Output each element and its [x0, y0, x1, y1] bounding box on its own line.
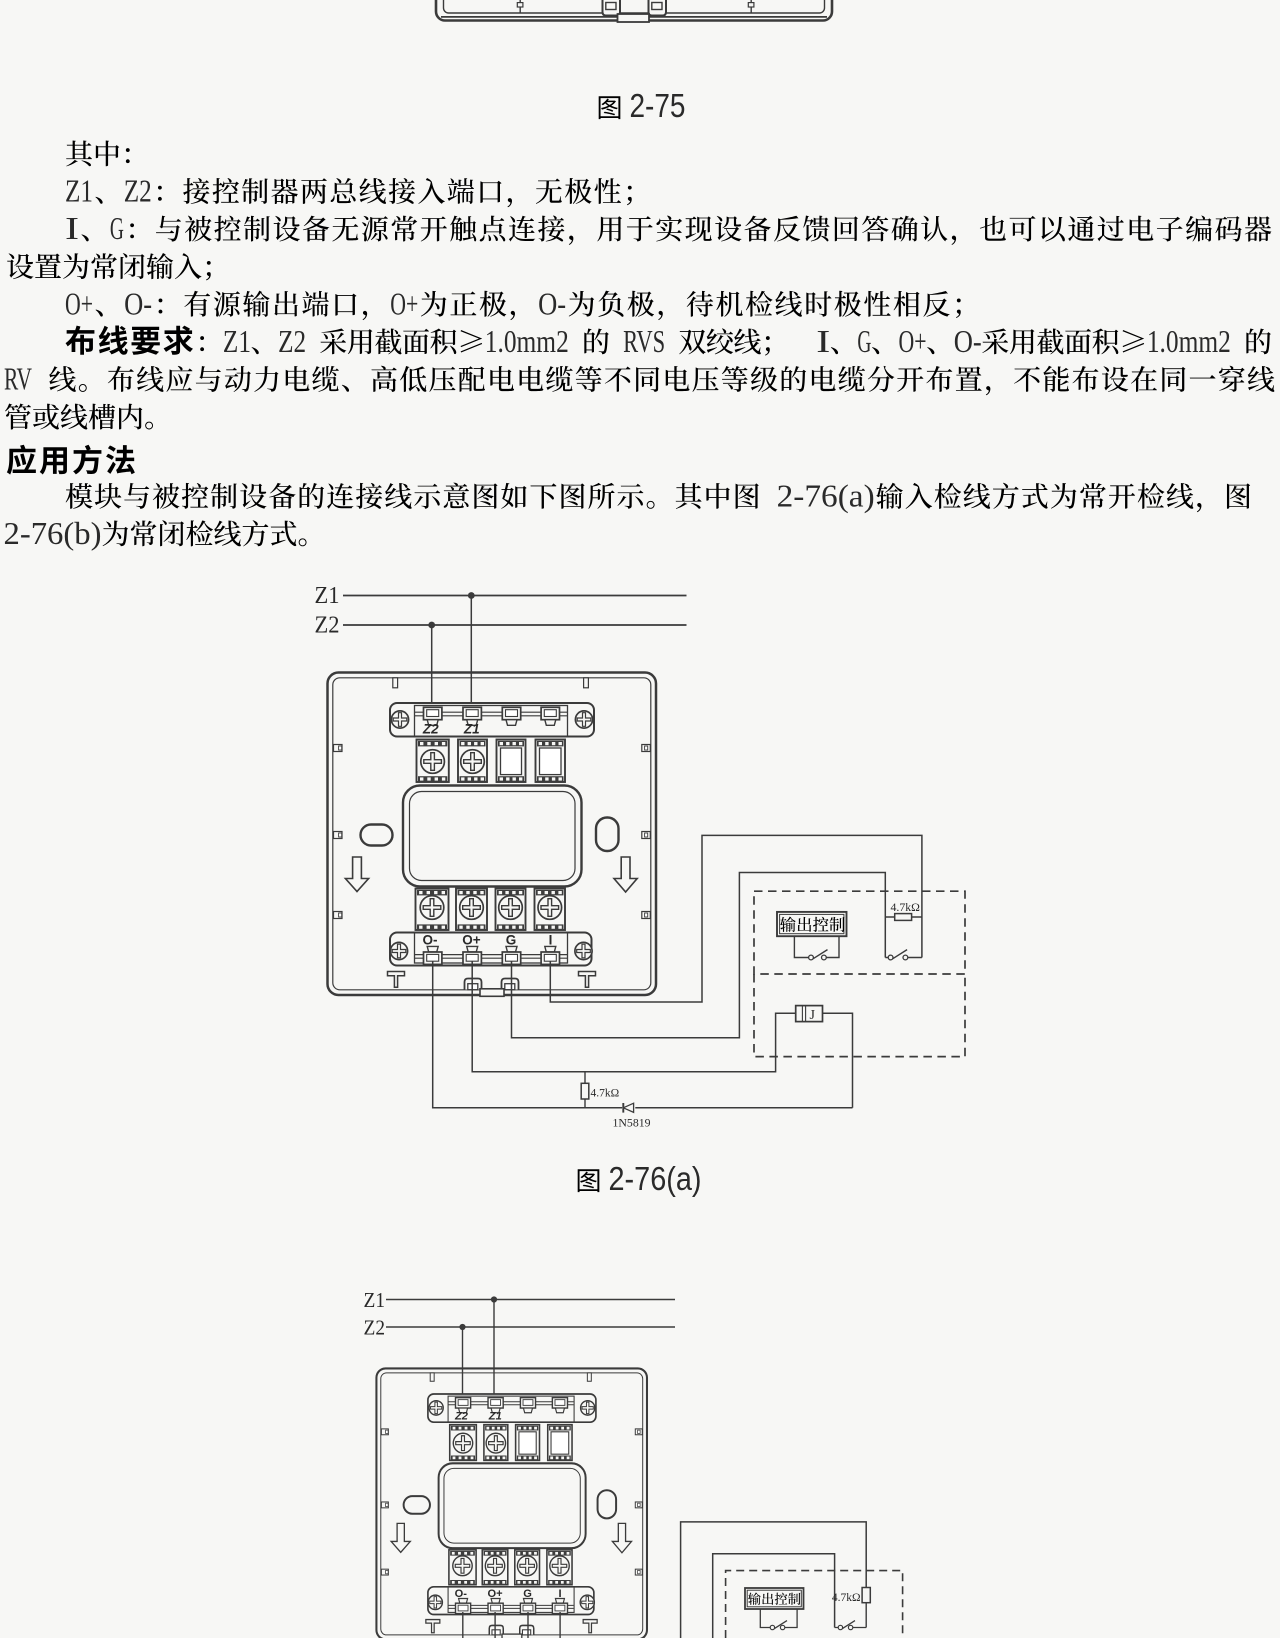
svg-text:Z1: Z1: [65, 173, 93, 209]
svg-text:G: G: [857, 323, 871, 359]
svg-text:O+: O+: [462, 933, 481, 948]
svg-text:Z1: Z1: [315, 582, 340, 609]
svg-text:I: I: [816, 323, 830, 359]
svg-text:2-76(b): 2-76(b): [4, 515, 102, 551]
svg-text:Z2: Z2: [278, 323, 306, 359]
svg-text:O-: O-: [423, 933, 438, 948]
svg-text:RVS: RVS: [623, 323, 665, 359]
svg-text:I: I: [65, 210, 79, 246]
svg-text:I: I: [549, 933, 553, 948]
svg-text:4.7kΩ: 4.7kΩ: [591, 1088, 620, 1100]
svg-text:O-: O-: [954, 323, 982, 359]
svg-text:G: G: [110, 210, 124, 246]
svg-text:O-: O-: [538, 285, 566, 321]
svg-text:Z2: Z2: [124, 173, 152, 209]
svg-text:2-76(a): 2-76(a): [609, 1160, 702, 1197]
svg-text:Z1: Z1: [364, 1288, 386, 1312]
svg-text:O+: O+: [390, 285, 418, 321]
svg-text:1N5819: 1N5819: [613, 1116, 651, 1130]
svg-text:Z1: Z1: [223, 323, 251, 359]
svg-text:1.0mm2: 1.0mm2: [485, 323, 569, 359]
svg-text:2-75: 2-75: [630, 87, 686, 124]
svg-text:RV: RV: [4, 361, 32, 397]
svg-text:J: J: [810, 1008, 816, 1023]
svg-text:O+: O+: [899, 323, 927, 359]
svg-text:O+: O+: [65, 285, 93, 321]
svg-text:Z2: Z2: [422, 722, 439, 737]
svg-text:O-: O-: [124, 285, 152, 321]
svg-text:2-76(a): 2-76(a): [777, 478, 875, 514]
svg-text:Z2: Z2: [315, 612, 340, 639]
svg-text:Z1: Z1: [463, 722, 480, 737]
svg-text:Z2: Z2: [364, 1316, 386, 1340]
svg-text:4.7kΩ: 4.7kΩ: [891, 900, 921, 914]
svg-text:4.7kΩ: 4.7kΩ: [832, 1592, 861, 1604]
svg-text:1.0mm2: 1.0mm2: [1147, 323, 1231, 359]
svg-text:G: G: [506, 933, 517, 948]
